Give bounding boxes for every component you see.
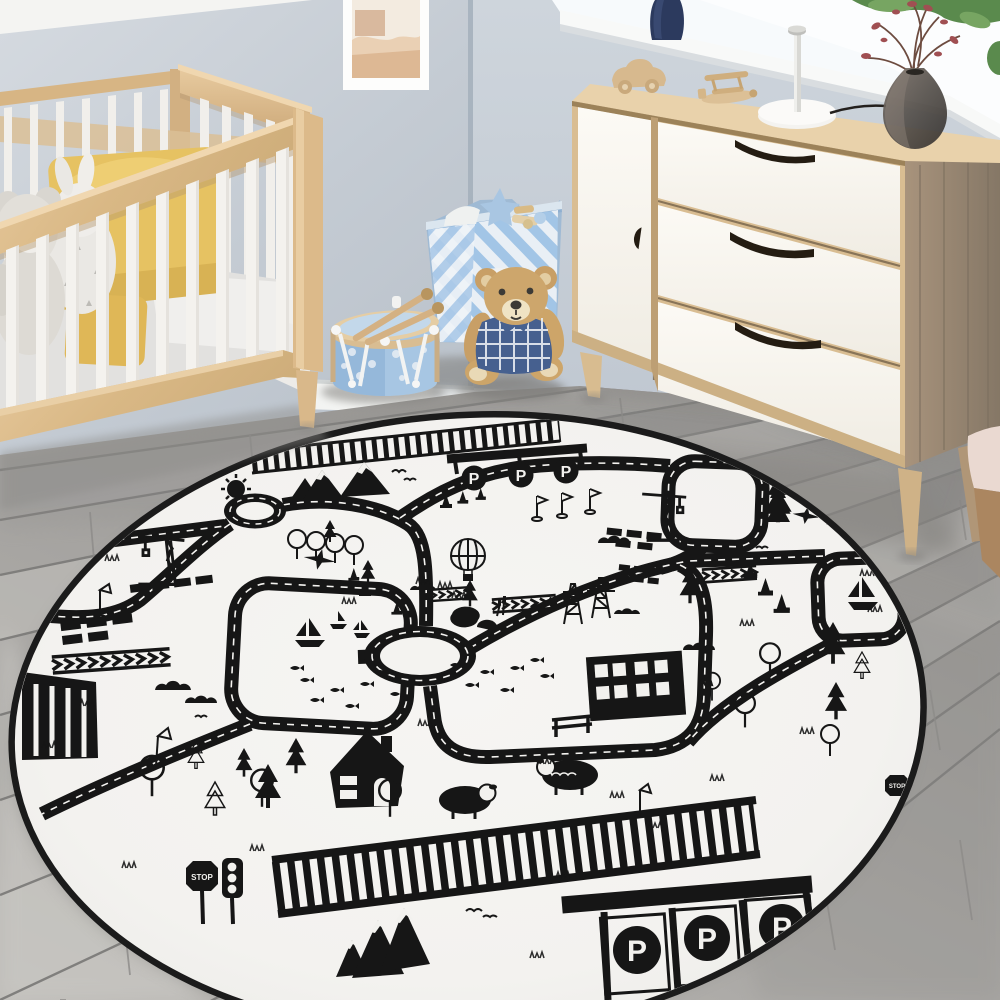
svg-text:P: P: [627, 935, 647, 968]
svg-text:P: P: [516, 468, 527, 485]
svg-text:P: P: [469, 471, 480, 488]
svg-text:P: P: [561, 464, 572, 481]
svg-text:P: P: [697, 923, 717, 956]
svg-text:STOP: STOP: [191, 873, 213, 882]
svg-text:STOP: STOP: [889, 784, 905, 790]
